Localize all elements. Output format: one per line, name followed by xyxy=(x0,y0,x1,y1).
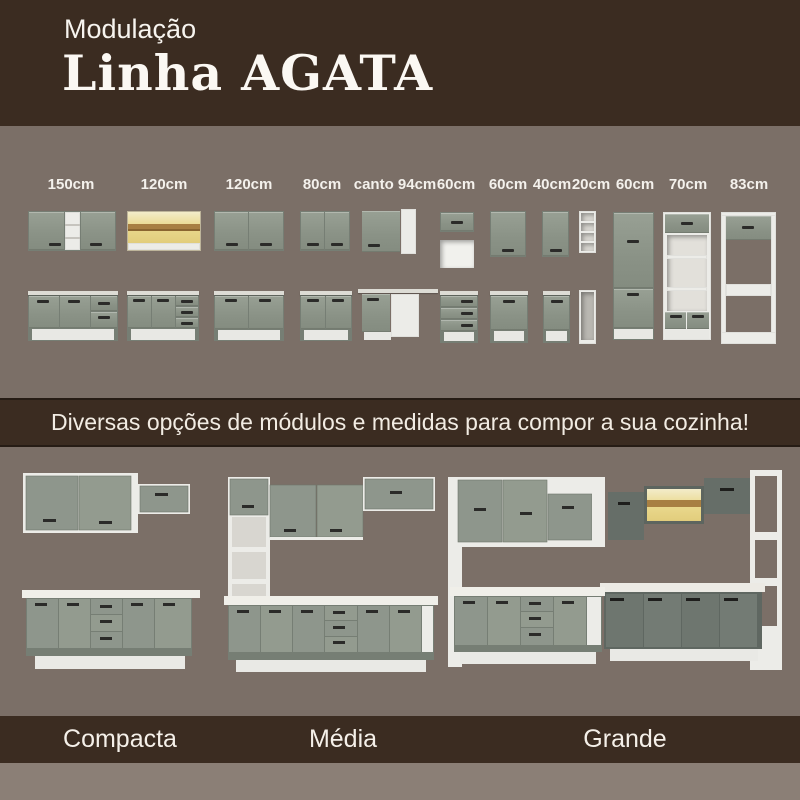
header-eyebrow: Modulação xyxy=(64,14,196,45)
drawer xyxy=(441,320,477,331)
door-handle xyxy=(331,243,343,246)
base-cabinet-60-drawers xyxy=(440,291,478,343)
wood-shelf xyxy=(128,224,200,231)
module-label-120cm-a: 120cm xyxy=(141,176,188,193)
drawer xyxy=(176,307,198,317)
drawer-handle xyxy=(461,300,473,303)
door-handle xyxy=(37,300,49,303)
toe-kick xyxy=(32,329,114,340)
base-cabinet-40 xyxy=(543,291,570,343)
tall-cabinet-70 xyxy=(663,212,711,340)
cabinet-door xyxy=(81,212,115,250)
cabinet-door xyxy=(687,312,709,329)
cabinet-door xyxy=(301,212,324,250)
drawer xyxy=(176,296,198,306)
countertop xyxy=(214,291,284,295)
door-handle xyxy=(226,243,238,246)
kitchen-label-grande: Grande xyxy=(583,725,666,754)
module-label-60cm-a: 60cm xyxy=(437,176,475,193)
open-niche xyxy=(440,240,474,268)
drawer xyxy=(441,308,477,319)
base-cabinet-120-a xyxy=(127,291,199,341)
door-handle xyxy=(332,299,344,302)
drawer-handle xyxy=(461,312,473,315)
door-handle xyxy=(260,243,272,246)
cabinet-door xyxy=(665,312,686,329)
countertop xyxy=(300,291,352,295)
toe-kick xyxy=(131,329,195,340)
door-handle xyxy=(451,221,463,224)
cabinet-door xyxy=(325,212,349,250)
wall-cabinet-120-glass xyxy=(127,211,201,251)
wall-cabinet-corner-94 xyxy=(362,209,416,254)
module-label-60cm-b: 60cm xyxy=(489,176,527,193)
wall-cabinet-60-b xyxy=(490,211,526,257)
cabinet-door xyxy=(491,212,525,256)
toe-kick xyxy=(218,330,280,340)
door-handle xyxy=(367,298,379,301)
module-label-40cm: 40cm xyxy=(533,176,571,193)
wall-cabinet-150 xyxy=(28,211,116,251)
base-shelf-20 xyxy=(579,290,596,344)
cabinet-base-rail xyxy=(128,243,200,250)
drawer xyxy=(441,296,477,307)
cabinet-door xyxy=(152,296,175,328)
header-band: Modulação Linha AGATA xyxy=(0,0,800,126)
door-handle xyxy=(49,243,61,246)
banner-band: Diversas opções de módulos e medidas par… xyxy=(0,398,800,447)
toe-kick xyxy=(665,330,709,339)
cabinet-door xyxy=(543,212,568,256)
countertop xyxy=(490,291,528,295)
drawer-handle xyxy=(181,311,193,314)
corner-panel xyxy=(401,209,416,254)
toe-kick xyxy=(494,331,524,341)
drawer-handle xyxy=(181,322,193,325)
cabinet-door xyxy=(362,211,400,252)
door-handle xyxy=(133,299,145,302)
drawer-handle xyxy=(98,316,110,319)
toe-kick xyxy=(546,331,567,341)
module-label-canto94: canto 94cm xyxy=(354,176,437,193)
door-handle xyxy=(502,249,514,252)
door-handle xyxy=(259,299,271,302)
wall-cabinet-60-flip xyxy=(440,212,474,232)
base-cabinet-corner-94 xyxy=(358,289,438,341)
countertop xyxy=(440,291,478,295)
frame-side xyxy=(771,212,776,344)
door-handle xyxy=(157,299,169,302)
kitchen-label-compacta: Compacta xyxy=(63,725,177,754)
open-shelf xyxy=(65,212,80,250)
countertop xyxy=(28,291,118,295)
wall-cabinet-80 xyxy=(300,211,350,251)
door-handle xyxy=(670,315,682,318)
cabinet-door xyxy=(128,296,151,328)
wall-cabinet-40 xyxy=(542,211,569,257)
door-handle xyxy=(692,315,704,318)
drawer xyxy=(176,318,198,328)
cabinet-door xyxy=(362,294,390,332)
wall-cabinet-120-b xyxy=(214,211,284,251)
cabinet-door xyxy=(301,296,325,329)
frame-bottom xyxy=(721,332,776,344)
countertop xyxy=(358,289,438,293)
base-cabinet-80 xyxy=(300,291,352,341)
door-handle xyxy=(742,226,754,229)
door-handle xyxy=(368,244,380,247)
wall-shelf-20 xyxy=(579,211,596,253)
toe-kick xyxy=(364,332,391,340)
cabinet-door xyxy=(249,212,283,250)
countertop xyxy=(543,291,570,295)
module-label-150cm: 150cm xyxy=(48,176,95,193)
module-label-60cm-c: 60cm xyxy=(616,176,654,193)
toe-kick xyxy=(614,329,653,339)
cabinet-door xyxy=(441,213,473,231)
cabinet-door xyxy=(491,296,527,330)
cabinet-door xyxy=(29,212,64,250)
module-label-70cm: 70cm xyxy=(669,176,707,193)
cabinet-door xyxy=(60,296,90,328)
door-handle xyxy=(627,240,639,243)
toe-kick xyxy=(304,330,348,340)
door-handle xyxy=(225,299,237,302)
tall-cabinet-60 xyxy=(613,212,654,340)
footer-band: Compacta Média Grande xyxy=(0,716,800,763)
cabinet-door xyxy=(614,289,653,328)
cabinet-door xyxy=(215,212,248,250)
cabinet-door xyxy=(544,296,569,330)
page-title: Linha AGATA xyxy=(62,44,433,102)
door-handle xyxy=(627,293,639,296)
door-handle xyxy=(90,243,102,246)
kitchens-section xyxy=(0,447,800,716)
cabinet-door xyxy=(326,296,351,329)
module-label-20cm: 20cm xyxy=(572,176,610,193)
door-handle xyxy=(307,299,319,302)
kitchen-compacta-illustration xyxy=(15,457,230,707)
module-label-120cm-b: 120cm xyxy=(226,176,273,193)
module-label-80cm: 80cm xyxy=(303,176,341,193)
drawer-handle xyxy=(98,302,110,305)
module-label-83cm: 83cm xyxy=(730,176,768,193)
product-image: Modulação Linha AGATA 150cm 120cm 120cm … xyxy=(0,0,800,800)
door-handle xyxy=(551,300,563,303)
drawer-handle xyxy=(461,324,473,327)
door-handle xyxy=(550,249,562,252)
door-handle xyxy=(68,300,80,303)
open-compartment xyxy=(667,235,707,311)
frame-shelf xyxy=(726,284,771,296)
kitchen-grande-illustration xyxy=(450,450,785,710)
countertop xyxy=(127,291,199,295)
cabinet-door xyxy=(215,296,248,329)
kitchen-label-media: Média xyxy=(309,725,377,754)
drawer xyxy=(91,312,117,328)
drawer-handle xyxy=(181,300,193,303)
tall-frame-83 xyxy=(721,212,776,344)
drawer xyxy=(91,296,117,311)
door-handle xyxy=(681,222,693,225)
base-cabinet-60-b xyxy=(490,291,528,343)
cabinet-door xyxy=(665,214,709,233)
cabinet-door xyxy=(249,296,283,329)
banner-text: Diversas opções de módulos e medidas par… xyxy=(51,409,749,436)
door-handle xyxy=(503,300,515,303)
toe-kick xyxy=(444,332,474,341)
base-cabinet-120-b xyxy=(214,291,284,341)
glass-door xyxy=(128,212,200,243)
base-cabinet-150 xyxy=(28,291,118,341)
corner-panel xyxy=(391,294,419,337)
door-handle xyxy=(307,243,319,246)
cabinet-door xyxy=(726,216,771,240)
kitchen-media-illustration xyxy=(222,455,462,710)
cabinet-door xyxy=(614,213,653,288)
cabinet-door xyxy=(29,296,59,328)
modules-section: 150cm 120cm 120cm 80cm canto 94cm 60cm 6… xyxy=(0,126,800,398)
bottom-strip xyxy=(0,763,800,800)
